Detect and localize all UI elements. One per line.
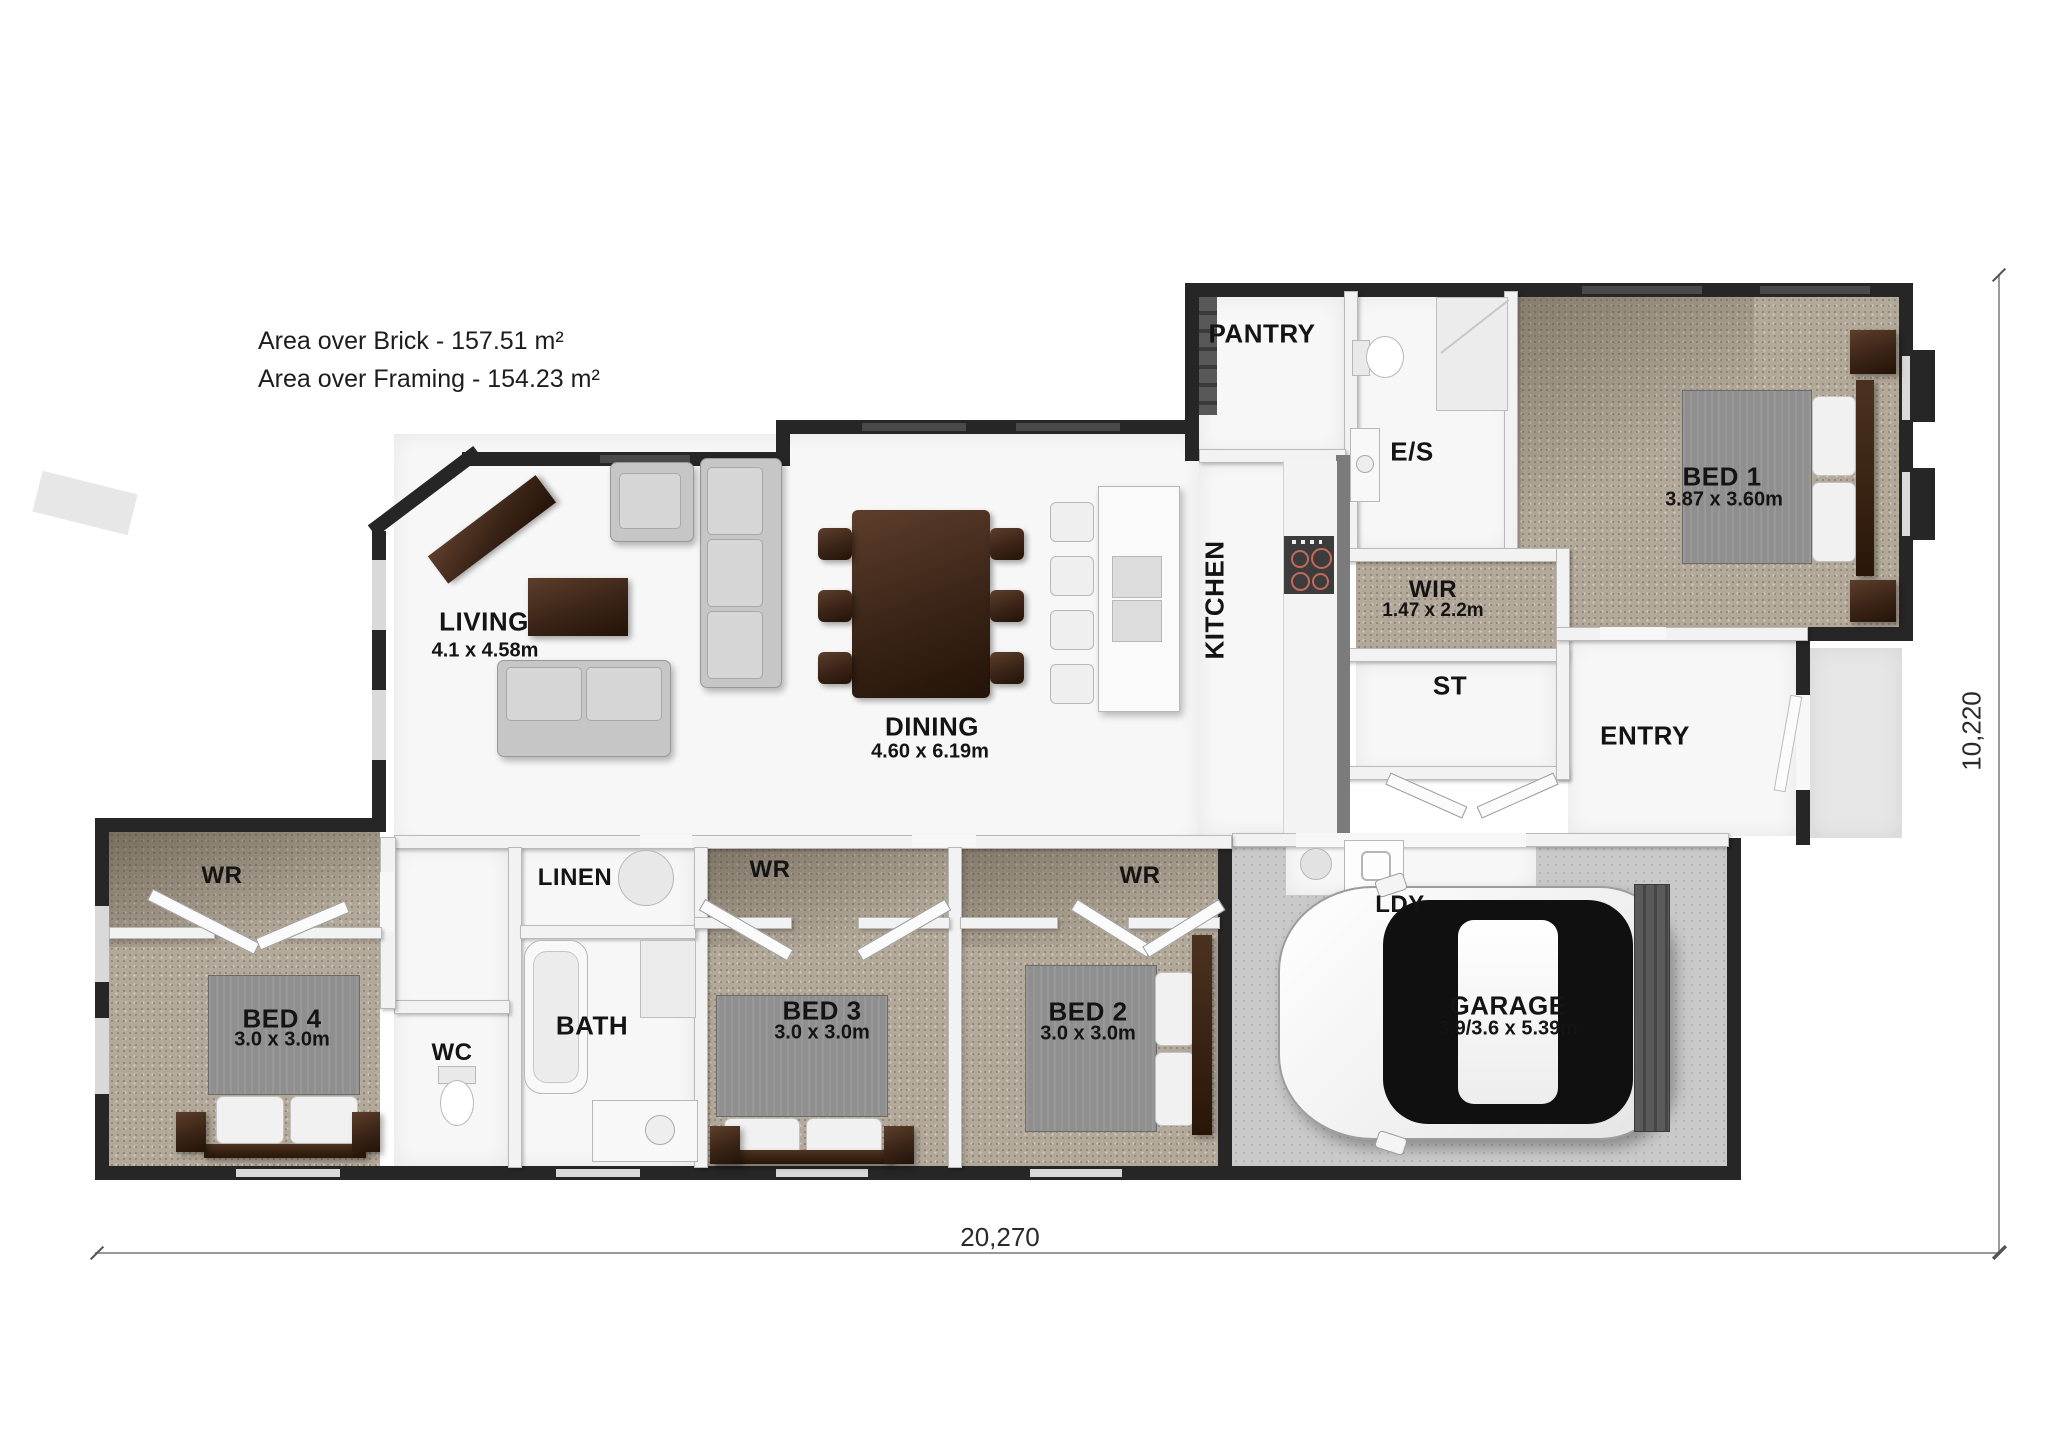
bedside-table-icon: [884, 1126, 914, 1164]
ldy-nook-opening: [1296, 833, 1526, 847]
exterior-wall: [1185, 283, 1199, 461]
room-size-living: 4.1 x 4.58m: [432, 640, 539, 663]
bedside-table-icon: [176, 1112, 206, 1152]
bedside-table-icon: [1850, 580, 1896, 622]
window: [1760, 286, 1870, 294]
laundry-basket-icon: [618, 850, 674, 906]
kitchen-bench-icon: [1283, 461, 1337, 833]
exterior-wall: [1806, 627, 1913, 641]
basin: [1356, 455, 1374, 473]
burner: [1291, 572, 1310, 591]
bar-stool-icon: [1050, 502, 1094, 542]
room-label-wc: WC: [432, 1039, 473, 1067]
headboard: [204, 1144, 366, 1158]
closet-wall: [109, 927, 215, 939]
cooktop-knobs: [1292, 540, 1322, 544]
burner: [1291, 550, 1309, 568]
window: [372, 560, 386, 630]
interior-wall: [1344, 766, 1568, 780]
room-label-wr-bed2: WR: [1120, 862, 1161, 890]
room-size-bed2: 3.0 x 3.0m: [1040, 1023, 1136, 1046]
interior-wall: [1556, 548, 1570, 780]
vanity-icon: [1350, 428, 1380, 502]
room-size-bed3: 3.0 x 3.0m: [774, 1022, 870, 1045]
room-label-es: E/S: [1390, 437, 1433, 468]
room-label-st: ST: [1433, 671, 1467, 702]
interior-wall: [948, 847, 962, 1168]
window: [1030, 1169, 1122, 1177]
floor-plan: PANTRY E/S BED 1 3.87 x 3.60m WIR 1.47 x…: [0, 0, 2048, 1448]
bar-stool-icon: [1050, 610, 1094, 650]
exterior-wall: [788, 420, 1185, 434]
window-stub: [1913, 468, 1935, 540]
armchair-cushion: [619, 473, 681, 529]
bar-stool-icon: [1050, 556, 1094, 596]
shower-glass-line: [1440, 299, 1509, 354]
bed1-entry-wall: [1556, 627, 1808, 641]
bedside-table-icon: [710, 1126, 740, 1164]
toilet-icon: [1366, 336, 1404, 378]
interior-wall: [1344, 548, 1568, 562]
coffee-table-icon: [528, 578, 628, 636]
basin: [645, 1115, 675, 1145]
window: [1016, 423, 1120, 431]
room-size-bed4: 3.0 x 3.0m: [234, 1029, 330, 1052]
burner: [1311, 548, 1332, 569]
pillow: [1155, 1052, 1195, 1126]
shower-icon: [640, 940, 696, 1018]
room-label-wr-bed3: WR: [750, 856, 791, 884]
sofa-cushion: [707, 539, 763, 607]
kitchen-back-wall: [1336, 455, 1350, 833]
sofa-cushion: [586, 667, 662, 721]
headboard: [1856, 380, 1874, 576]
room-label-living: LIVING: [439, 607, 529, 638]
room-label-ldy: LDY: [1375, 891, 1425, 919]
vanity-icon: [592, 1100, 698, 1162]
window: [95, 1018, 109, 1094]
room-label-kitchen: KITCHEN: [1200, 540, 1231, 659]
door-opening: [1600, 627, 1666, 639]
window: [776, 1169, 868, 1177]
dining-chair-icon: [818, 652, 852, 684]
door-opening: [640, 835, 692, 847]
window: [1582, 286, 1702, 294]
window: [95, 906, 109, 982]
dimension-height-label: 10,220: [1957, 691, 1988, 771]
interior-wall: [1344, 648, 1568, 662]
window-stub: [1913, 350, 1935, 422]
sofa-cushion: [506, 667, 582, 721]
window: [1902, 472, 1910, 536]
pillow: [1812, 482, 1856, 562]
dining-chair-icon: [818, 590, 852, 622]
closet-wall: [960, 917, 1058, 929]
room-label-wr-bed4: WR: [202, 862, 243, 890]
exterior-wall: [95, 818, 109, 1180]
pantry-shelf-icon: [1199, 297, 1217, 415]
room-size-garage: 3.9/3.6 x 5.39m: [1438, 1018, 1578, 1041]
garage-door-icon: [1634, 884, 1670, 1132]
window: [236, 1169, 340, 1177]
pillow: [290, 1096, 358, 1144]
area-over-brick: Area over Brick - 157.51 m²: [258, 322, 600, 360]
room-label-linen: LINEN: [538, 864, 613, 892]
room-size-dining: 4.60 x 6.19m: [871, 741, 989, 764]
sofa-cushion: [707, 467, 763, 535]
sink-icon: [1112, 600, 1162, 642]
exterior-wall: [95, 1166, 1741, 1180]
shower-icon: [1436, 297, 1508, 411]
bar-stool-icon: [1050, 664, 1094, 704]
dimension-line-vertical: [1998, 275, 2000, 1252]
room-label-dining: DINING: [885, 712, 979, 743]
room-size-wir: 1.47 x 2.2m: [1382, 600, 1483, 622]
exterior-wall: [95, 818, 386, 832]
sofa-cushion: [707, 611, 763, 679]
room-label-pantry: PANTRY: [1209, 319, 1316, 350]
cooktop-icon: [1284, 536, 1334, 594]
window: [862, 423, 966, 431]
exterior-wall: [1727, 838, 1741, 1180]
kitchen-island-icon: [1098, 486, 1180, 712]
pillow: [1155, 972, 1195, 1046]
window: [556, 1169, 640, 1177]
window: [1902, 356, 1910, 420]
dining-table-icon: [852, 510, 990, 698]
dimension-line-horizontal: [95, 1252, 2000, 1254]
sink-icon: [1112, 556, 1162, 598]
interior-wall: [508, 847, 522, 1168]
armchair-icon: [610, 462, 694, 542]
toilet-icon: [440, 1080, 474, 1126]
pillow: [216, 1096, 284, 1144]
dining-chair-icon: [990, 590, 1024, 622]
area-annotation: Area over Brick - 157.51 m² Area over Fr…: [258, 322, 600, 398]
room-label-bath: BATH: [556, 1011, 628, 1042]
dining-chair-icon: [990, 652, 1024, 684]
roof-slat-decoration: [32, 471, 137, 535]
room-size-bed1: 3.87 x 3.60m: [1665, 489, 1783, 512]
door-opening: [912, 835, 976, 847]
sectional-sofa-icon: [700, 458, 782, 688]
headboard: [1192, 935, 1212, 1135]
laundry-sink-icon: [1300, 848, 1332, 880]
bedside-table-icon: [352, 1112, 380, 1152]
dining-chair-icon: [818, 528, 852, 560]
door-opening: [380, 872, 394, 932]
sofa-icon: [497, 660, 671, 757]
dimension-width-label: 20,270: [960, 1222, 1040, 1253]
room-label-entry: ENTRY: [1600, 721, 1690, 752]
window: [372, 690, 386, 760]
area-over-framing: Area over Framing - 154.23 m²: [258, 360, 600, 398]
interior-wall: [394, 1000, 510, 1014]
exterior-wall: [1218, 845, 1232, 1166]
dining-chair-icon: [990, 528, 1024, 560]
pillow: [1812, 396, 1856, 476]
bedside-table-icon: [1850, 330, 1896, 374]
interior-wall: [520, 925, 696, 939]
exterior-wall: [1899, 283, 1913, 640]
burner: [1312, 573, 1329, 590]
bed-icon: [1025, 965, 1157, 1132]
porch-floor: [1810, 648, 1902, 838]
